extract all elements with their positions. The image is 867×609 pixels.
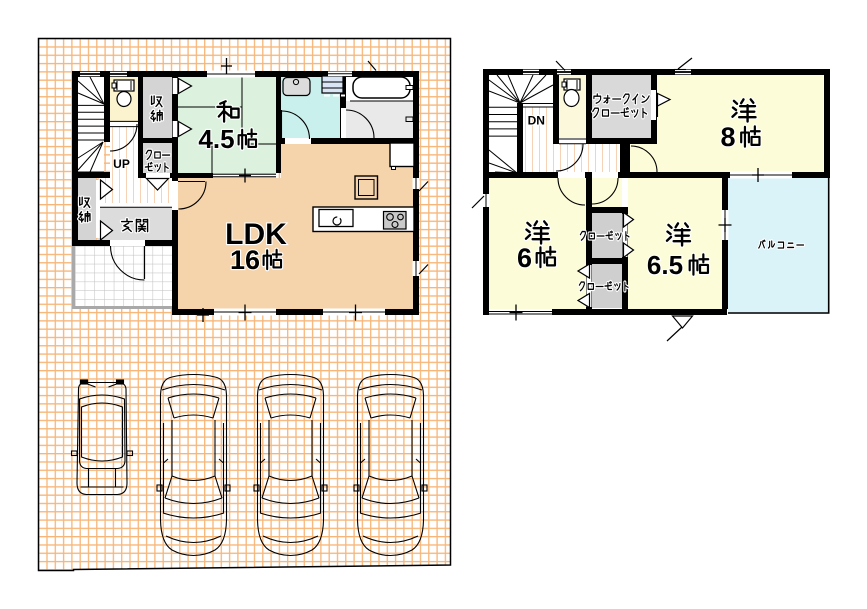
svg-text:UP: UP [113,157,130,171]
svg-text:DN: DN [528,114,545,128]
svg-text:16: 16 [230,245,260,275]
svg-text:8: 8 [720,122,735,152]
svg-text:6: 6 [517,243,532,273]
svg-text:4.5: 4.5 [198,124,234,154]
svg-text:6.5: 6.5 [647,250,683,280]
